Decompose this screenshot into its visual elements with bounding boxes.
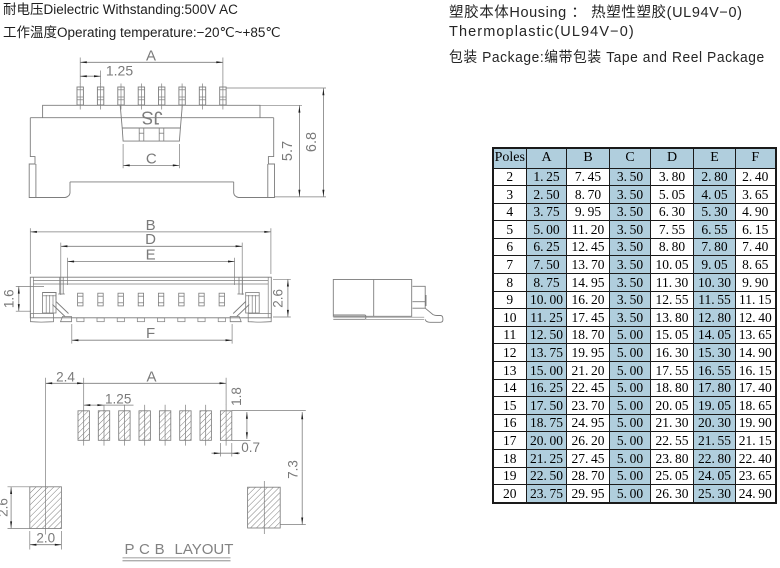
svg-text:2.6: 2.6 bbox=[270, 289, 285, 308]
svg-text:F: F bbox=[146, 325, 155, 342]
svg-text:1.8: 1.8 bbox=[229, 387, 244, 406]
svg-text:P C B: P C B bbox=[125, 541, 165, 558]
svg-text:JS: JS bbox=[141, 108, 162, 128]
svg-text:2.6: 2.6 bbox=[0, 498, 11, 517]
svg-text:C: C bbox=[146, 150, 157, 167]
svg-text:6.8: 6.8 bbox=[304, 132, 320, 152]
svg-text:1.6: 1.6 bbox=[2, 289, 17, 308]
svg-text:2.0: 2.0 bbox=[36, 531, 55, 546]
svg-text:A: A bbox=[146, 369, 156, 386]
svg-text:1.25: 1.25 bbox=[106, 63, 133, 79]
svg-text:E: E bbox=[146, 246, 156, 263]
svg-text:1.25: 1.25 bbox=[105, 391, 131, 406]
svg-text:2.4: 2.4 bbox=[56, 370, 75, 385]
svg-text:7.3: 7.3 bbox=[285, 460, 300, 479]
svg-text:LAYOUT: LAYOUT bbox=[175, 541, 234, 558]
svg-text:5.7: 5.7 bbox=[280, 141, 296, 161]
svg-text:0.7: 0.7 bbox=[241, 440, 260, 455]
svg-text:A: A bbox=[146, 48, 156, 65]
